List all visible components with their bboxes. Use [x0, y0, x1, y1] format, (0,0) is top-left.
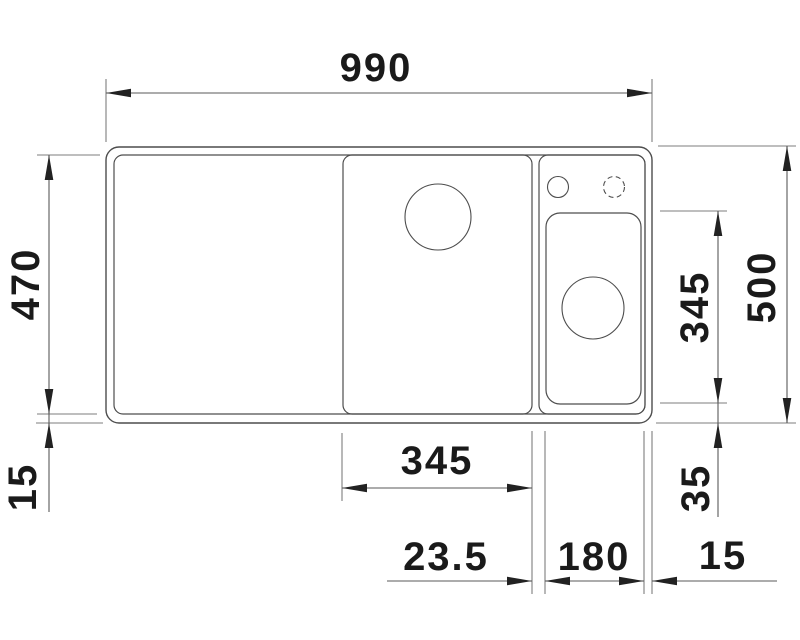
small-bowl-drain-circle — [562, 277, 624, 339]
small-bowl — [546, 213, 641, 404]
label-small-bowl-width: 180 — [558, 535, 631, 579]
label-inner-depth: 470 — [4, 248, 48, 321]
label-main-bowl-width: 345 — [401, 439, 474, 483]
arrow-overall-width-right — [627, 89, 652, 98]
arrow-overall-depth-top — [783, 146, 792, 171]
technical-drawing-page: 990 470 15 345 23.5 180 15 345 35 500 — [0, 0, 800, 640]
arrow-rim-bottom — [45, 423, 54, 448]
arrow-inner-depth-top — [45, 155, 54, 180]
label-partition-width: 23.5 — [403, 535, 489, 579]
main-bowl-drain-circle — [405, 184, 471, 250]
label-small-bowl-depth: 345 — [673, 271, 717, 344]
arrow-main-bowl-right — [507, 484, 532, 493]
dimension-labels: 990 470 15 345 23.5 180 15 345 35 500 — [1, 46, 784, 579]
tap-hole-optional-dashed — [604, 177, 625, 198]
label-overall-depth: 500 — [740, 251, 784, 324]
tap-hole — [548, 177, 569, 198]
sink-outlines — [106, 147, 652, 423]
arrow-overall-width-left — [106, 89, 131, 98]
sink-outer-edge — [106, 147, 652, 423]
arrow-overall-depth-bottom — [783, 398, 792, 423]
label-small-bowl-offset: 35 — [674, 464, 718, 513]
arrow-rim-right — [652, 577, 677, 586]
main-bowl — [343, 155, 532, 414]
arrow-small-bowl-depth-top — [714, 211, 723, 236]
label-overall-width: 990 — [340, 46, 413, 90]
label-rim-right: 15 — [699, 534, 748, 578]
arrow-inner-depth-bottom — [45, 389, 54, 414]
arrow-partition — [507, 577, 532, 586]
arrow-small-bowl-offset — [714, 423, 723, 448]
right-compartment — [539, 155, 645, 414]
arrow-small-bowl-depth-bottom — [714, 378, 723, 403]
arrow-main-bowl-left — [342, 484, 367, 493]
sink-dimension-drawing: 990 470 15 345 23.5 180 15 345 35 500 — [0, 0, 800, 640]
label-rim-bottom: 15 — [1, 463, 45, 512]
